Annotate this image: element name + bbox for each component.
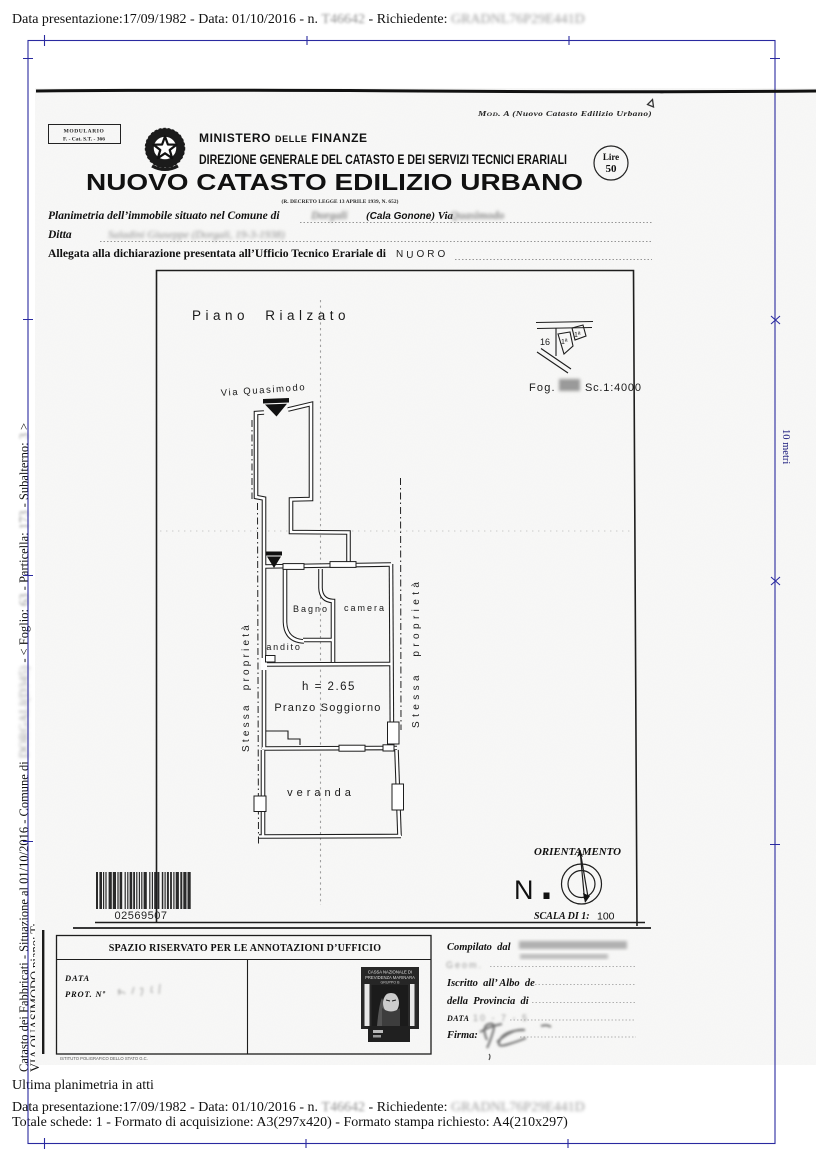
- svg-text:ISTITUTO POLIGRAFICO DELLO STA: ISTITUTO POLIGRAFICO DELLO STATO G.C.: [60, 1056, 148, 1061]
- svg-text:(Cala Gonone) Via: (Cala Gonone) Via: [366, 210, 454, 222]
- svg-text:Pranzo Soggiorno: Pranzo Soggiorno: [274, 702, 381, 714]
- svg-text:Bagno: Bagno: [293, 604, 329, 614]
- svg-text:Lire: Lire: [603, 152, 619, 162]
- svg-text:della Provincia di: della Provincia di: [447, 996, 529, 1007]
- svg-text:Dorgali: Dorgali: [310, 210, 348, 222]
- svg-text:DATA: DATA: [446, 1014, 470, 1023]
- svg-text:veranda: veranda: [287, 787, 355, 799]
- svg-text:Fog.: Fog.: [529, 382, 556, 394]
- svg-text:16: 16: [540, 337, 550, 347]
- svg-text:Iscritto all’ Albo de: Iscritto all’ Albo de: [446, 978, 535, 989]
- svg-text:MOD. A (Nuovo Catasto Edilizio: MOD. A (Nuovo Catasto Edilizio Urbano): [477, 110, 652, 118]
- svg-text:02569507: 02569507: [115, 910, 168, 922]
- svg-text:Quasimodo: Quasimodo: [450, 210, 505, 222]
- svg-text:DIREZIONE GENERALE DEL CATASTO: DIREZIONE GENERALE DEL CATASTO E DEI SER…: [199, 152, 567, 167]
- svg-text:PROT. Nº: PROT. Nº: [65, 989, 106, 999]
- svg-text:100: 100: [597, 911, 615, 923]
- svg-text:Planimetria dell’immobile situ: Planimetria dell’immobile situato nel Co…: [48, 210, 280, 222]
- svg-text:MINISTERO DELLE FINANZE: MINISTERO DELLE FINANZE: [199, 131, 368, 145]
- svg-text:SCALA DI 1:: SCALA DI 1:: [534, 911, 590, 922]
- svg-text:h = 2.65: h = 2.65: [302, 681, 356, 693]
- svg-text:Ditta: Ditta: [47, 229, 72, 241]
- svg-text:SPAZIO RISERVATO PER LE ANNOTA: SPAZIO RISERVATO PER LE ANNOTAZIONI D’UF…: [109, 943, 382, 954]
- svg-text:Stessa proprietà: Stessa proprietà: [411, 578, 422, 728]
- svg-text:GRUPPO B: GRUPPO B: [381, 981, 401, 985]
- svg-text:50: 50: [606, 163, 618, 175]
- svg-text:10 - 7 - 5: 10 - 7 - 5: [473, 1013, 529, 1023]
- svg-text:NUORO: NUORO: [396, 249, 448, 261]
- svg-text:camera: camera: [344, 603, 386, 613]
- svg-text:Allegata alla dichiarazione pr: Allegata alla dichiarazione presentata a…: [48, 248, 386, 260]
- svg-text:DATA: DATA: [64, 973, 90, 983]
- svg-text:Piano Rialzato: Piano Rialzato: [192, 308, 350, 323]
- svg-text:CASSA NAZIONALE DI: CASSA NAZIONALE DI: [368, 970, 412, 975]
- svg-text:N: N: [514, 875, 534, 905]
- svg-text:1ª: 1ª: [561, 339, 568, 346]
- svg-text:Firma:: Firma:: [446, 1030, 478, 1041]
- svg-text:(R. DECRETO LEGGE 13 APRILE 19: (R. DECRETO LEGGE 13 APRILE 1939, N. 652…: [281, 198, 398, 205]
- svg-text:10 metri: 10 metri: [780, 429, 791, 464]
- svg-text:NUOVO CATASTO EDILIZIO URBANO: NUOVO CATASTO EDILIZIO URBANO: [86, 169, 583, 195]
- svg-text:Saladini Giuseppe (Dorgali, 19: Saladini Giuseppe (Dorgali, 19-3-1938): [108, 229, 285, 241]
- svg-text:F. - Cat. S.T. - 366: F. - Cat. S.T. - 366: [63, 137, 105, 143]
- svg-text:Stessa proprietà: Stessa proprietà: [241, 622, 252, 752]
- svg-text:Geom.: Geom.: [446, 960, 483, 970]
- svg-text:andito: andito: [266, 642, 301, 652]
- svg-text:Compilato dal: Compilato dal: [447, 942, 511, 953]
- svg-text:1ª: 1ª: [574, 332, 581, 339]
- svg-text:PREVIDENZA MARINARA: PREVIDENZA MARINARA: [365, 975, 415, 980]
- svg-text:Sc.1:4000: Sc.1:4000: [585, 382, 642, 394]
- svg-text:MODULARIO: MODULARIO: [64, 129, 105, 135]
